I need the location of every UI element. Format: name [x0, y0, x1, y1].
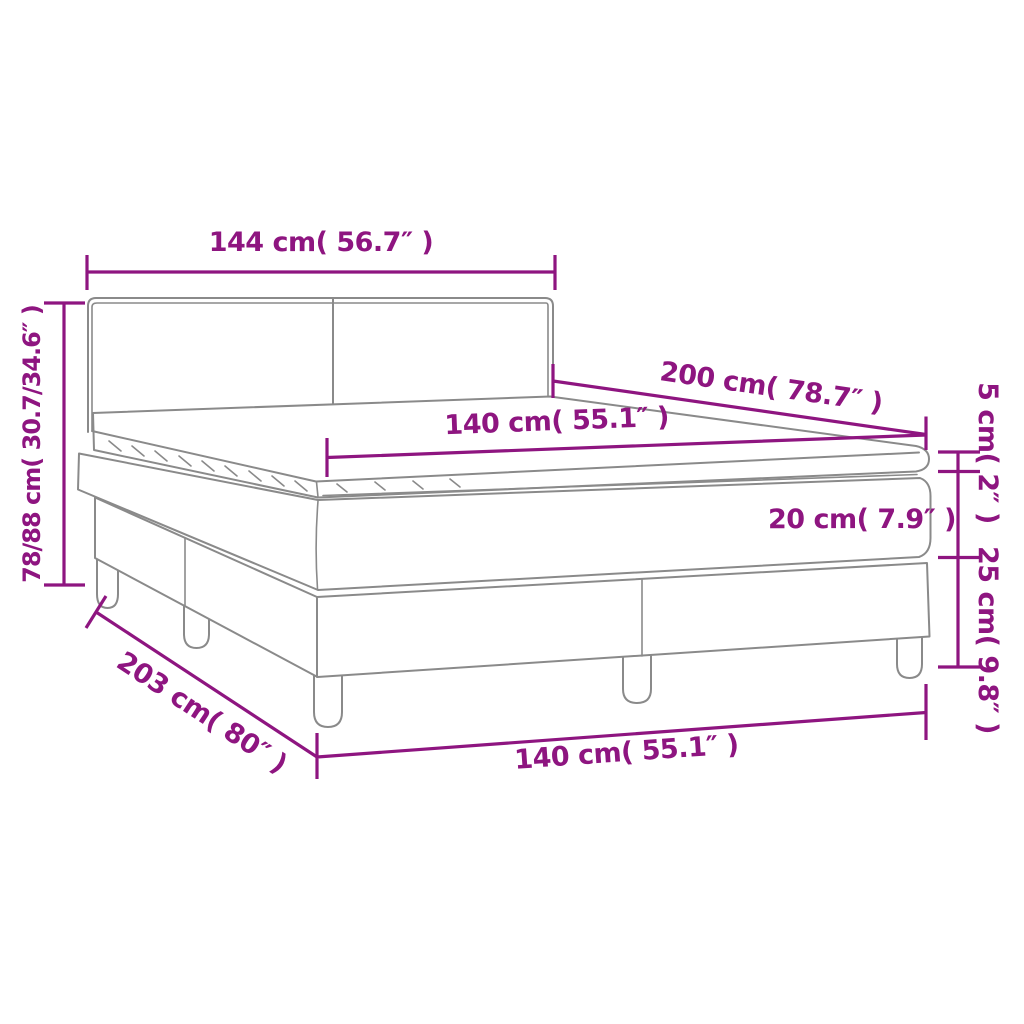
dim-mattress-length-label: 200 cm( 78.7″ ): [658, 356, 885, 419]
dim-topper-height-label: 5 cm( 2″ ): [972, 382, 1003, 524]
bed-dimension-diagram: 144 cm( 56.7″ ) 78/88 cm( 30.7/34.6″ ) 2…: [0, 0, 1024, 1024]
dim-base-length-label: 203 cm( 80″ ): [111, 646, 292, 780]
dim-base-width: 140 cm( 55.1″ ): [317, 684, 926, 779]
dim-total-height-label: 78/88 cm( 30.7/34.6″ ): [18, 305, 46, 583]
dim-total-height: 78/88 cm( 30.7/34.6″ ): [18, 303, 85, 585]
dim-mattress-height: 20 cm( 7.9″ ): [768, 504, 956, 535]
dim-headboard-width-label: 144 cm( 56.7″ ): [209, 227, 434, 258]
dim-right-column: 5 cm( 2″ ) 25 cm( 9.8″ ): [938, 382, 1003, 734]
dim-base-width-label: 140 cm( 55.1″ ): [513, 729, 739, 776]
dim-mattress-height-label: 20 cm( 7.9″ ): [768, 504, 956, 535]
bed-diagram-canvas: 144 cm( 56.7″ ) 78/88 cm( 30.7/34.6″ ) 2…: [0, 0, 1024, 1024]
dim-headboard-width: 144 cm( 56.7″ ): [87, 227, 555, 290]
dim-base-height-label: 25 cm( 9.8″ ): [972, 546, 1003, 734]
